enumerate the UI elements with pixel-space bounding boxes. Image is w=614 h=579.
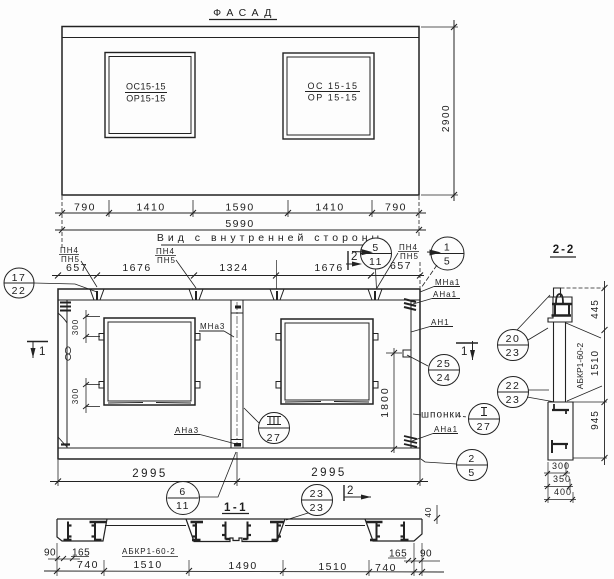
svg-text:МНа3: МНа3 xyxy=(200,322,225,331)
svg-text:АН1: АН1 xyxy=(431,318,450,327)
svg-text:1410: 1410 xyxy=(315,202,344,214)
svg-text:1510: 1510 xyxy=(318,561,347,573)
svg-text:2: 2 xyxy=(347,485,356,497)
svg-text:300: 300 xyxy=(71,319,80,335)
svg-text:МНа1: МНа1 xyxy=(435,278,460,287)
svg-text:шпонки: шпонки xyxy=(421,410,461,421)
svg-text:ОС15-15: ОС15-15 xyxy=(126,82,166,92)
svg-text:1-1: 1-1 xyxy=(224,502,248,514)
svg-text:300: 300 xyxy=(552,461,570,471)
svg-text:1590: 1590 xyxy=(225,202,254,214)
svg-text:1800: 1800 xyxy=(379,386,391,417)
svg-text:5: 5 xyxy=(468,467,475,479)
svg-text:90: 90 xyxy=(44,548,56,559)
svg-text:790: 790 xyxy=(74,202,96,214)
svg-text:ПН5: ПН5 xyxy=(61,255,80,264)
svg-text:657: 657 xyxy=(390,260,412,272)
svg-text:23: 23 xyxy=(506,347,521,359)
svg-text:1510: 1510 xyxy=(590,350,601,376)
svg-text:ОС 15-15: ОС 15-15 xyxy=(307,81,358,91)
svg-text:740: 740 xyxy=(375,562,397,574)
svg-text:ОР 15-15: ОР 15-15 xyxy=(308,93,359,103)
svg-text:5: 5 xyxy=(372,242,379,254)
svg-text:ПН5: ПН5 xyxy=(400,252,419,261)
svg-text:АБКР1-60-2: АБКР1-60-2 xyxy=(575,343,585,390)
svg-text:АНа3: АНа3 xyxy=(175,426,199,435)
svg-text:1676: 1676 xyxy=(314,262,343,274)
svg-text:445: 445 xyxy=(590,299,601,319)
svg-text:1: 1 xyxy=(461,346,470,358)
svg-text:2995: 2995 xyxy=(132,468,168,480)
svg-text:23: 23 xyxy=(310,488,325,500)
svg-text:2-2: 2-2 xyxy=(553,244,576,256)
svg-text:945: 945 xyxy=(590,410,601,430)
svg-text:2: 2 xyxy=(468,453,475,465)
svg-text:ПН4: ПН4 xyxy=(399,243,418,252)
svg-text:1324: 1324 xyxy=(219,262,248,274)
svg-text:740: 740 xyxy=(77,559,99,571)
svg-text:350: 350 xyxy=(553,474,571,484)
svg-text:20: 20 xyxy=(506,333,521,345)
svg-text:АБКР1-60-2: АБКР1-60-2 xyxy=(122,547,176,556)
svg-text:17: 17 xyxy=(12,272,27,284)
svg-text:1676: 1676 xyxy=(122,262,151,274)
svg-text:2900: 2900 xyxy=(441,104,452,132)
svg-text:23: 23 xyxy=(506,394,521,406)
svg-text:790: 790 xyxy=(385,202,407,214)
svg-text:6: 6 xyxy=(179,486,186,498)
svg-text:11: 11 xyxy=(176,500,190,512)
svg-text:ОР15-15: ОР15-15 xyxy=(126,94,166,104)
svg-text:5: 5 xyxy=(444,256,451,268)
svg-text:22: 22 xyxy=(12,285,27,297)
svg-text:23: 23 xyxy=(310,502,325,514)
svg-text:300: 300 xyxy=(71,388,80,404)
svg-text:27: 27 xyxy=(267,432,282,444)
svg-text:27: 27 xyxy=(477,421,492,433)
svg-text:1510: 1510 xyxy=(133,559,162,571)
svg-text:Вид с внутренней стороны: Вид с внутренней стороны xyxy=(157,232,383,244)
svg-text:ПН4: ПН4 xyxy=(60,246,79,255)
svg-text:ПН4: ПН4 xyxy=(156,247,175,256)
svg-text:1: 1 xyxy=(444,242,451,254)
svg-text:5990: 5990 xyxy=(225,218,254,230)
svg-text:ПН5: ПН5 xyxy=(157,256,176,265)
svg-text:АНа1: АНа1 xyxy=(434,425,458,434)
svg-text:ФАСАД: ФАСАД xyxy=(213,7,277,19)
svg-text:40: 40 xyxy=(424,507,433,518)
svg-text:АНа1: АНа1 xyxy=(433,290,457,299)
svg-text:25: 25 xyxy=(437,358,452,370)
svg-text:400: 400 xyxy=(554,487,572,497)
svg-text:2995: 2995 xyxy=(311,467,347,479)
svg-text:1490: 1490 xyxy=(228,560,257,572)
svg-text:1410: 1410 xyxy=(136,202,165,214)
svg-text:22: 22 xyxy=(506,380,521,392)
svg-text:11: 11 xyxy=(369,256,383,268)
svg-text:24: 24 xyxy=(437,372,452,384)
svg-text:1: 1 xyxy=(39,346,48,358)
svg-text:2: 2 xyxy=(351,251,360,263)
